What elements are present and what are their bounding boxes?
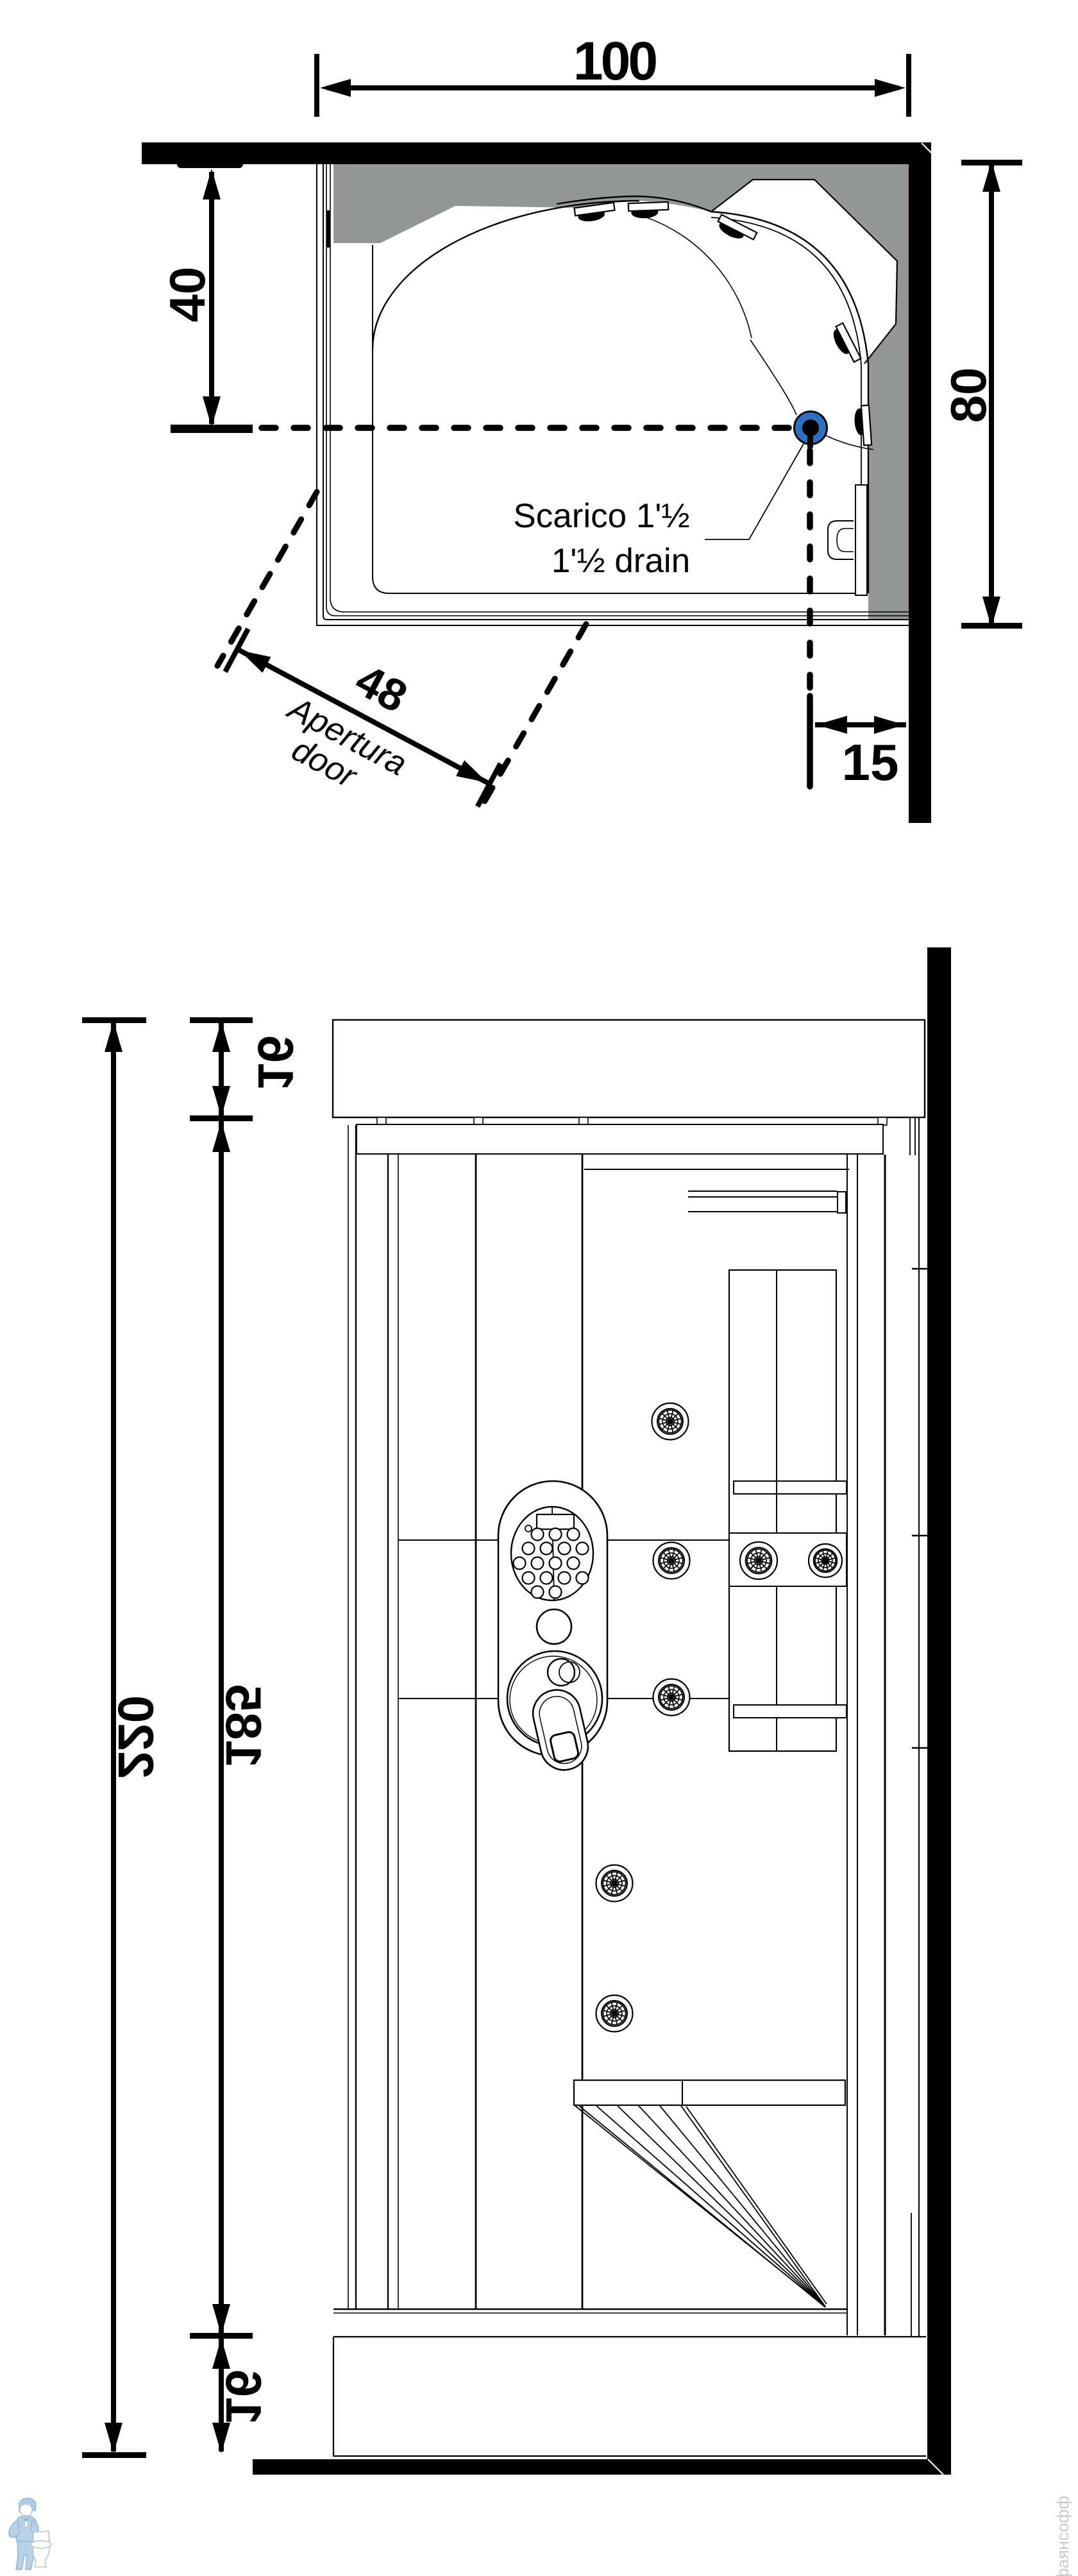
svg-text:15: 15 — [842, 734, 899, 791]
svg-text:1'½ drain: 1'½ drain — [552, 542, 690, 580]
svg-text:40: 40 — [159, 267, 215, 323]
svg-text:80: 80 — [940, 368, 997, 423]
svg-text:100: 100 — [573, 31, 656, 91]
svg-text:16: 16 — [248, 1035, 304, 1091]
svg-text:185: 185 — [215, 1684, 272, 1768]
svg-text:220: 220 — [108, 1695, 164, 1779]
svg-text:фаянсофф: фаянсофф — [1053, 2496, 1072, 2576]
svg-text:16: 16 — [215, 2369, 272, 2425]
svg-text:Scarico 1'½: Scarico 1'½ — [513, 497, 689, 535]
